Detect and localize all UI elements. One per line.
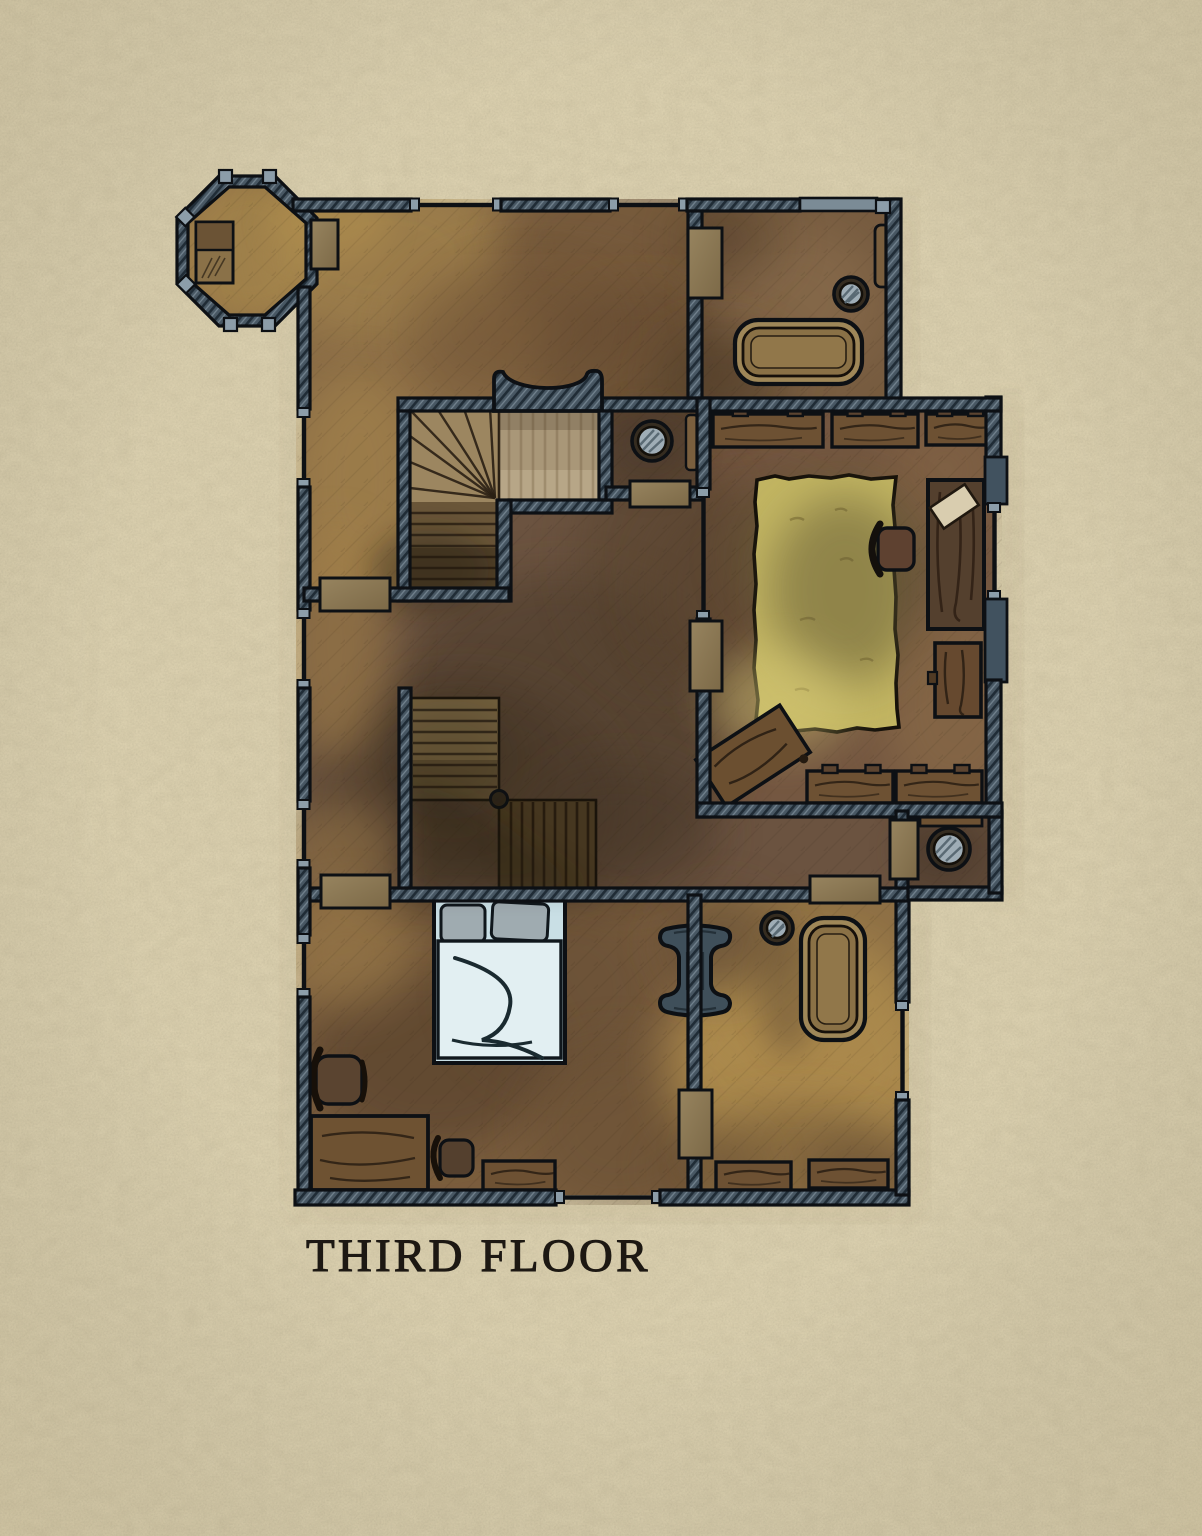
svg-text:THIRD FLOOR: THIRD FLOOR [306,1230,651,1282]
